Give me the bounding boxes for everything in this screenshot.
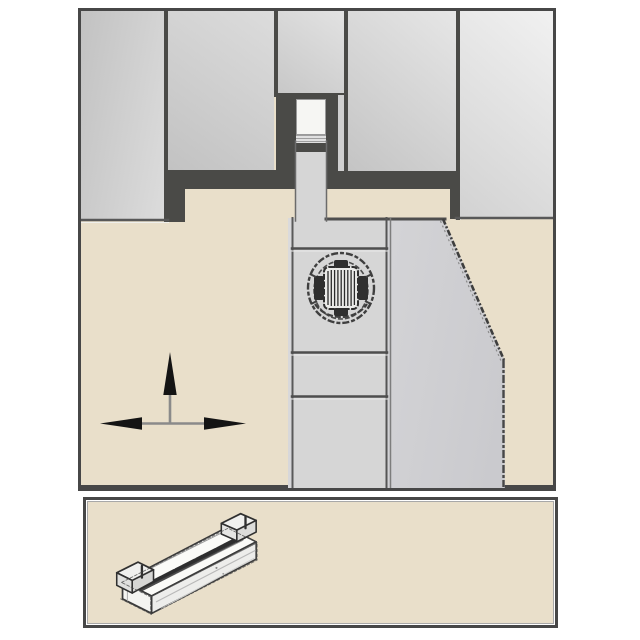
- insert-seat-serration: [296, 135, 326, 143]
- tool-block-cross-section-panel: [78, 8, 556, 491]
- block-column-right: [460, 11, 553, 219]
- block-column-4: [348, 11, 456, 172]
- feed-directions-icon: [100, 352, 246, 430]
- arrow-up-head: [163, 352, 176, 395]
- pocket-side-strip: [338, 95, 344, 171]
- blade-neck: [295, 152, 327, 222]
- grooving-insert-icon: [100, 504, 300, 626]
- block-column-left: [81, 11, 165, 221]
- block-column-2: [168, 11, 274, 171]
- arrow-left-head: [100, 417, 142, 429]
- clamp-shadow-step-left: [168, 170, 185, 222]
- clamped-insert-cross-section: [296, 99, 326, 135]
- block-column-center-top: [278, 11, 344, 96]
- catalog-illustration-page: { "meta": { "description": "Technical ca…: [0, 0, 640, 640]
- clamp-shadow-band-right: [338, 171, 452, 189]
- clamp-shadow-step-right: [450, 171, 460, 219]
- arrow-right-head: [204, 417, 246, 429]
- insert-sketch-panel: [83, 497, 558, 628]
- blade-column: [292, 218, 387, 488]
